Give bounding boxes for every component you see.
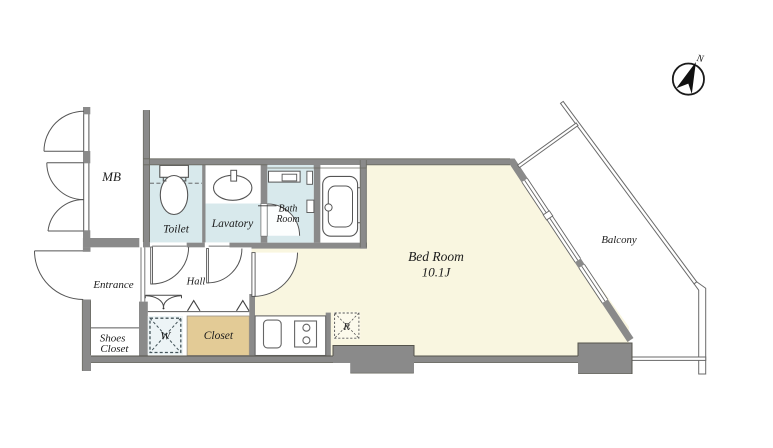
svg-text:10.1J: 10.1J [422,264,452,279]
svg-text:Lavatory: Lavatory [211,218,254,230]
svg-text:Closet: Closet [204,330,234,342]
svg-text:Entrance: Entrance [92,279,133,291]
svg-text:Toilet: Toilet [163,224,190,236]
svg-text:Bed Room: Bed Room [408,249,464,264]
svg-text:Room: Room [275,214,299,225]
svg-text:W: W [160,329,171,343]
svg-text:Closet: Closet [100,343,129,355]
svg-text:R: R [342,322,350,333]
svg-text:MB: MB [101,169,121,184]
svg-text:Hall: Hall [186,277,206,288]
svg-text:Balcony: Balcony [601,234,637,246]
